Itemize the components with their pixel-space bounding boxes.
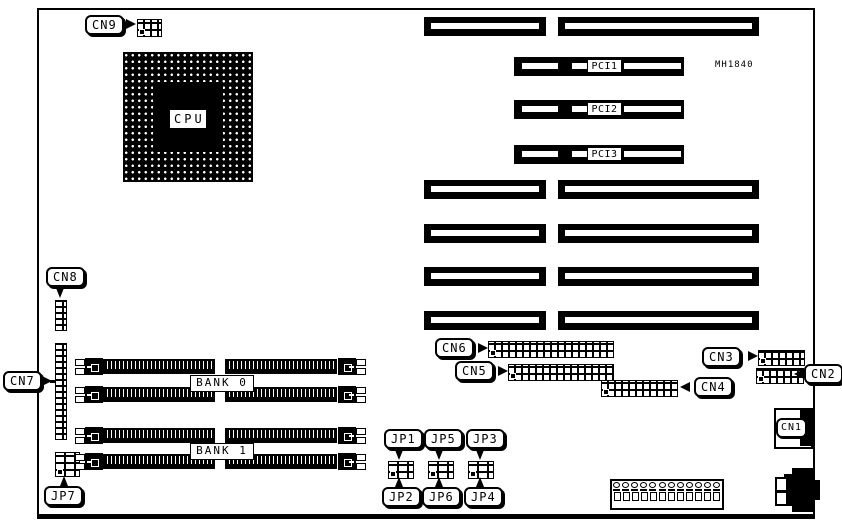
power-pin-oval: [640, 482, 647, 488]
power-pin-oval: [695, 482, 702, 488]
cn6-pointer-icon: [478, 343, 488, 353]
power-pin: [694, 481, 703, 491]
pci2-label: PCI2: [587, 102, 622, 116]
keyboard-din-solder-tab: [775, 477, 788, 492]
cn9-label: CN9: [85, 15, 124, 35]
power-hole: [704, 492, 711, 501]
power-hole: [686, 492, 693, 501]
jp4-pointer-icon: [476, 477, 484, 487]
power-pin: [612, 481, 621, 491]
isa-slot-5-right: [558, 311, 759, 330]
cn8-connector: [55, 300, 67, 331]
power-pin-dash: [631, 489, 638, 491]
simm-latch-line: [87, 394, 92, 396]
isa-slot-5-left: [424, 311, 546, 330]
pci-slot-window: [624, 63, 681, 69]
motherboard-diagram: MH1840 CN9 CPU PCI1 PCI2 PCI3 CN8 CN7: [0, 0, 842, 527]
simm-tab: [356, 387, 366, 394]
power-hole: [695, 492, 702, 501]
power-pin: [648, 481, 657, 491]
cn3-connector: [758, 350, 805, 366]
isa-slot-window: [431, 23, 539, 29]
isa-slot-4-left: [424, 267, 546, 286]
cn4-pointer-icon: [680, 382, 690, 392]
cn4-connector: [601, 380, 678, 397]
power-pin-dash: [622, 489, 629, 491]
pci-slot-window: [572, 106, 588, 112]
simm-tab: [356, 428, 366, 435]
pci-slot-window: [624, 151, 681, 157]
isa-slot-2-left: [424, 180, 546, 199]
simm-tab: [356, 454, 366, 461]
power-pin-oval: [713, 482, 720, 488]
simm-tab: [356, 463, 366, 470]
pci-slot-window: [522, 151, 558, 157]
power-hole: [623, 492, 630, 501]
power-hole: [659, 492, 666, 501]
cn3-pointer-icon: [748, 351, 758, 361]
simm-latch-hook: [91, 392, 99, 400]
bank0-label: BANK 0: [190, 375, 254, 392]
pci1-label: PCI1: [587, 59, 622, 73]
power-pin-dash: [695, 489, 702, 491]
simm-latch-line: [349, 461, 354, 463]
simm-contacts: [103, 359, 215, 374]
power-pin: [630, 481, 639, 491]
power-pin-dash: [649, 489, 656, 491]
cn8-label: CN8: [46, 267, 85, 287]
isa-slot-window: [431, 317, 539, 323]
power-pin: [667, 481, 676, 491]
cn5-pin1-marker: [510, 373, 516, 379]
pci-slot-window: [624, 106, 681, 112]
simm-tab: [75, 428, 85, 435]
simm-contacts: [103, 428, 215, 443]
simm-tab: [75, 387, 85, 394]
pci3-label: PCI3: [587, 147, 622, 161]
isa-slot-window: [431, 186, 539, 192]
simm-latch-line: [87, 435, 92, 437]
isa-slot-window: [431, 273, 539, 279]
power-pin: [657, 481, 666, 491]
power-connector-pins: [612, 481, 722, 491]
cn6-label: CN6: [435, 338, 474, 358]
jp3-pointer-icon: [476, 450, 484, 460]
power-hole: [650, 492, 657, 501]
bank1-label: BANK 1: [190, 443, 254, 460]
cn1-label: CN1: [776, 418, 807, 438]
cn7-label: CN7: [3, 371, 42, 391]
power-pin: [676, 481, 685, 491]
power-pin-dash: [668, 489, 675, 491]
cn2-pointer-icon: [794, 369, 804, 379]
power-pin-oval: [649, 482, 656, 488]
power-pin: [703, 481, 712, 491]
power-pin-dash: [640, 489, 647, 491]
simm-tab: [356, 368, 366, 375]
pci-slot-window: [522, 106, 558, 112]
simm-latch-line: [87, 366, 92, 368]
simm-latch-line: [349, 394, 354, 396]
simm-latch-right: [338, 427, 356, 444]
cn2-pin1-marker: [758, 376, 764, 382]
cn3-label: CN3: [702, 347, 741, 367]
power-connector: [610, 479, 724, 510]
simm-tab: [75, 396, 85, 403]
cn6-pin1-marker: [490, 350, 496, 356]
jp5-pointer-icon: [435, 450, 443, 460]
keyboard-din-connector-bulge: [812, 480, 820, 500]
power-pin-oval: [622, 482, 629, 488]
cn5-label: CN5: [455, 361, 494, 381]
cpu-socket: CPU: [123, 52, 253, 182]
power-pin-oval: [704, 482, 711, 488]
simm-tab: [75, 368, 85, 375]
power-hole: [713, 492, 720, 501]
keyboard-din-connector: [792, 468, 814, 512]
power-pin: [639, 481, 648, 491]
simm-latch-line: [349, 366, 354, 368]
isa-slot-2-right: [558, 180, 759, 199]
power-pin-oval: [613, 482, 620, 488]
cn7-pointer-stub: [50, 380, 56, 383]
jp5-label: JP5: [424, 429, 463, 449]
simm-latch-right: [338, 358, 356, 375]
simm-tab: [75, 463, 85, 470]
simm-latch-right: [338, 386, 356, 403]
isa-slot-window: [565, 273, 752, 279]
simm-socket-3: [75, 427, 365, 444]
power-hole: [668, 492, 675, 501]
power-pin-oval: [668, 482, 675, 488]
pci-slot-1: PCI1: [514, 57, 684, 76]
simm-latch-left: [85, 453, 103, 470]
simm-latch-left: [85, 386, 103, 403]
cn2-label: CN2: [804, 364, 842, 384]
power-pin-dash: [677, 489, 684, 491]
isa-slot-3-right: [558, 224, 759, 243]
simm-socket-1: [75, 358, 365, 375]
simm-tab: [75, 454, 85, 461]
simm-tab: [356, 396, 366, 403]
simm-tab: [356, 437, 366, 444]
power-pin: [621, 481, 630, 491]
simm-tab: [356, 359, 366, 366]
jp7-pointer-icon: [60, 476, 68, 486]
jp1-label: JP1: [384, 429, 423, 449]
isa-slot-window: [565, 230, 752, 236]
jp2-pointer-icon: [395, 477, 403, 487]
power-hole: [632, 492, 639, 501]
isa-slot-window: [431, 230, 539, 236]
power-pin-oval: [631, 482, 638, 488]
simm-contacts: [225, 359, 337, 374]
jp2-label: JP2: [382, 487, 421, 507]
pci-slot-window: [572, 151, 588, 157]
pci-slot-2: PCI2: [514, 100, 684, 119]
simm-contacts: [225, 428, 337, 443]
power-pin-dash: [713, 489, 720, 491]
power-pin-oval: [686, 482, 693, 488]
power-connector-holes: [612, 491, 722, 501]
cn8-pointer-icon: [56, 288, 64, 298]
cn7-connector: [55, 343, 67, 440]
power-pin-oval: [677, 482, 684, 488]
cpu-label: CPU: [170, 110, 206, 128]
isa-slot-1-right: [558, 17, 759, 36]
power-pin-dash: [686, 489, 693, 491]
simm-latch-hook: [91, 364, 99, 372]
jp3-label: JP3: [466, 429, 505, 449]
jp7-pin1-marker: [57, 469, 63, 475]
isa-slot-window: [565, 23, 752, 29]
cn9-connector: [137, 19, 162, 37]
isa-slot-window: [565, 317, 752, 323]
power-pin-dash: [613, 489, 620, 491]
power-pin: [685, 481, 694, 491]
cn3-pin1-marker: [760, 358, 766, 364]
simm-latch-left: [85, 358, 103, 375]
jp6-label: JP6: [422, 487, 461, 507]
pci-slot-window: [572, 63, 588, 69]
simm-tab: [75, 359, 85, 366]
cn5-pointer-icon: [498, 366, 508, 376]
isa-slot-window: [565, 186, 752, 192]
isa-slot-1-left: [424, 17, 546, 36]
jp7-label: JP7: [44, 486, 83, 506]
power-pin-dash: [659, 489, 666, 491]
simm-latch-hook: [91, 433, 99, 441]
board-model-text: MH1840: [715, 60, 754, 70]
power-hole: [641, 492, 648, 501]
simm-latch-line: [87, 461, 92, 463]
power-hole: [614, 492, 621, 501]
cn9-pin1-marker: [139, 29, 145, 35]
simm-latch-right: [338, 453, 356, 470]
simm-latch-hook: [91, 459, 99, 467]
isa-slot-4-right: [558, 267, 759, 286]
simm-latch-left: [85, 427, 103, 444]
power-hole: [677, 492, 684, 501]
cn4-pin1-marker: [603, 389, 609, 395]
keyboard-din-solder-tab: [775, 491, 788, 506]
power-pin: [712, 481, 721, 491]
cn6-connector: [488, 341, 614, 358]
cn1-connector: CN1: [774, 408, 813, 449]
cn9-pointer-icon: [126, 19, 136, 29]
jp6-pointer-icon: [435, 477, 443, 487]
simm-latch-line: [349, 435, 354, 437]
jp1-pointer-icon: [395, 450, 403, 460]
power-pin-dash: [704, 489, 711, 491]
simm-tab: [75, 437, 85, 444]
power-pin-oval: [659, 482, 666, 488]
isa-slot-3-left: [424, 224, 546, 243]
pci-slot-window: [522, 63, 558, 69]
jp4-label: JP4: [464, 487, 503, 507]
cn4-label: CN4: [694, 377, 733, 397]
pci-slot-3: PCI3: [514, 145, 684, 164]
cn5-connector: [508, 364, 614, 381]
